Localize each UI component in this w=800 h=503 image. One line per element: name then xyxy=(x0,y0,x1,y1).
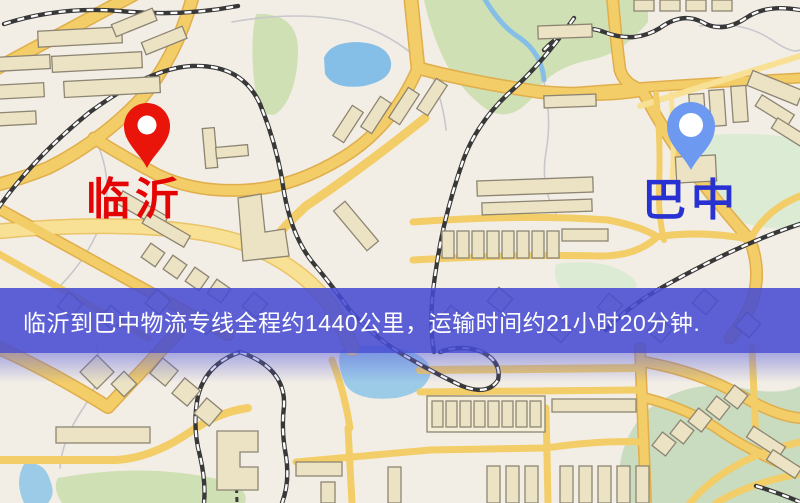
route-info-banner: 临沂到巴中物流专线全程约1440公里，运输时间约21小时20分钟. xyxy=(0,288,800,353)
origin-city-label: 临沂 xyxy=(86,178,184,222)
origin-pin-icon[interactable] xyxy=(121,102,173,172)
map-canvas xyxy=(0,0,800,503)
banner-shadow-gradient xyxy=(0,353,800,383)
destination-pin-icon[interactable] xyxy=(665,100,717,172)
destination-city-label: 巴中 xyxy=(642,179,740,223)
route-info-text: 临沂到巴中物流专线全程约1440公里，运输时间约21小时20分钟. xyxy=(0,304,700,338)
logistics-map-image: 临沂到巴中物流专线全程约1440公里，运输时间约21小时20分钟. 临沂 巴中 xyxy=(0,0,800,503)
